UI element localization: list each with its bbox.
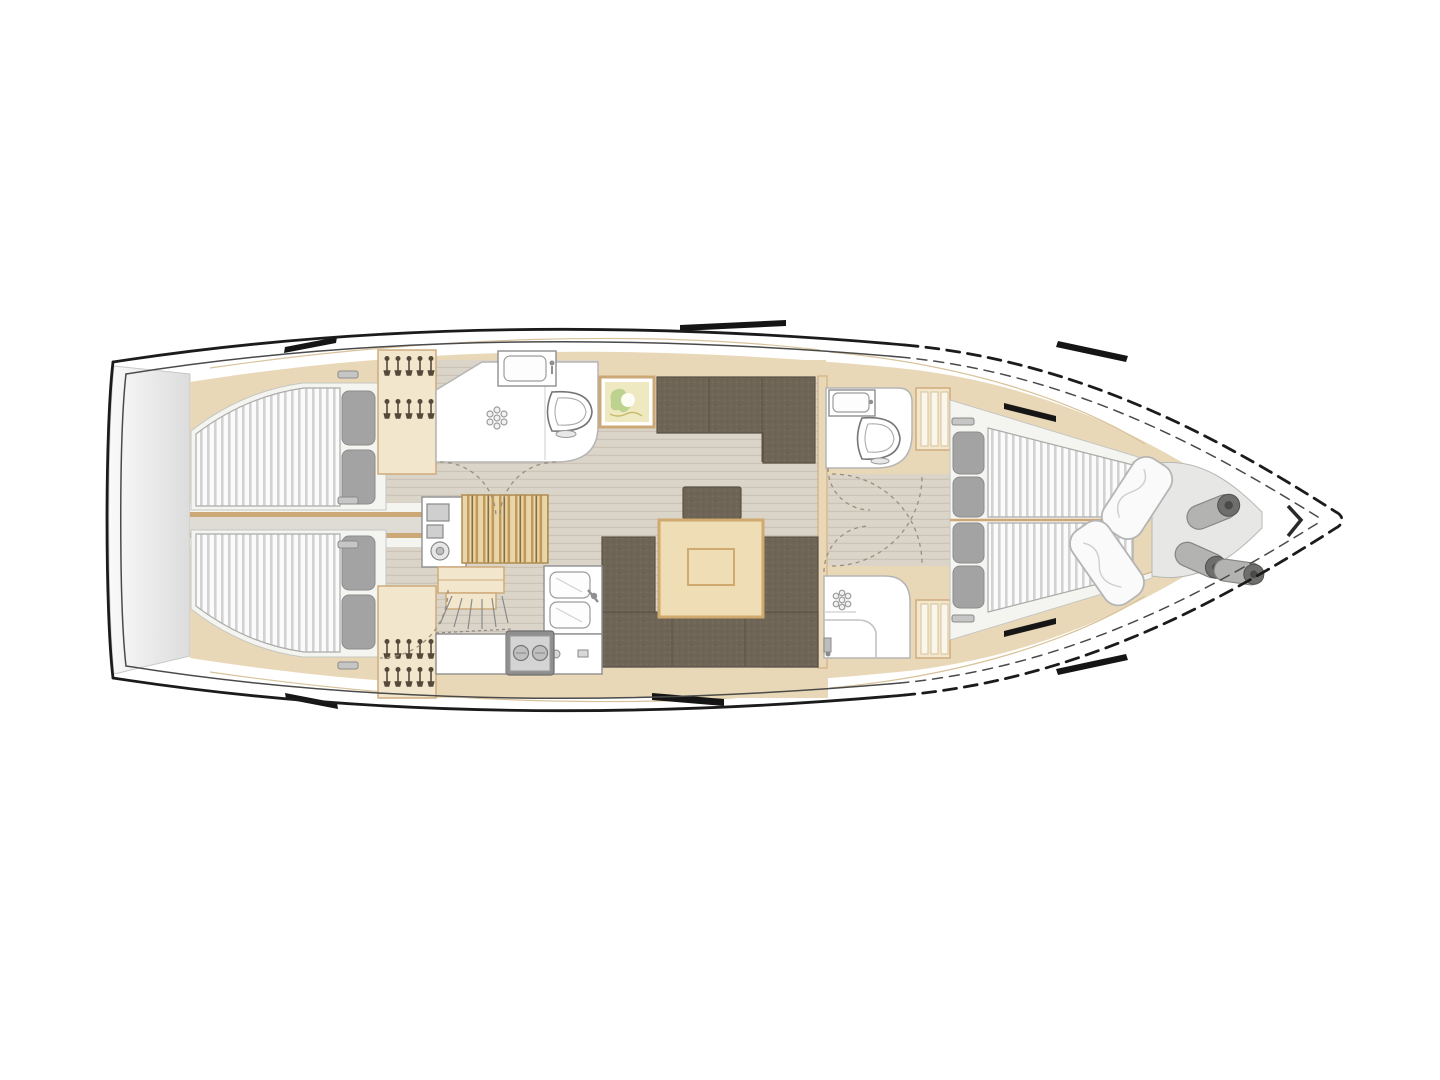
chart-picture (600, 377, 654, 427)
counter-fitting-icon (578, 650, 588, 657)
salon-table (659, 520, 763, 617)
galley-sink-unit (544, 566, 602, 634)
reading-light-icon (338, 662, 358, 669)
stove (506, 631, 554, 675)
reading-light-icon (338, 371, 358, 378)
pillow (953, 566, 984, 608)
pillow (342, 450, 375, 504)
nav-instrument (427, 504, 449, 521)
pillow (342, 595, 375, 649)
aft-wardrobe-port (378, 350, 436, 474)
dinette (602, 520, 818, 667)
yacht-floorplan-canvas (0, 0, 1440, 1080)
forward-wardrobe-starboard (916, 600, 950, 658)
pillow (953, 432, 984, 474)
salon-bottom-wood-trim (598, 666, 828, 698)
forward-head (826, 388, 912, 468)
forward-corridor-floor (828, 474, 950, 566)
forward-wardrobe-port (916, 388, 950, 450)
washbasin (498, 351, 556, 386)
pillow (342, 391, 375, 445)
nav-seat (462, 495, 548, 563)
pillow (953, 523, 984, 563)
galley-counter-forward (436, 634, 506, 674)
pillow (953, 477, 984, 517)
reading-light-icon (338, 497, 358, 504)
dinette-settee-bottom (602, 612, 818, 667)
reading-light-icon (952, 418, 974, 425)
salon-top-wood-trim (598, 360, 826, 378)
reading-light-icon (952, 615, 974, 622)
washbasin (829, 390, 875, 416)
yacht-floorplan-diagram (0, 0, 1440, 1080)
salon-stool (683, 487, 741, 519)
reading-light-icon (338, 541, 358, 548)
forward-shower (824, 576, 910, 658)
nav-instrument-dial-center (436, 547, 444, 555)
nav-instrument (427, 525, 443, 538)
shower-fitting (824, 638, 831, 652)
aft-wardrobe-starboard (378, 586, 436, 698)
